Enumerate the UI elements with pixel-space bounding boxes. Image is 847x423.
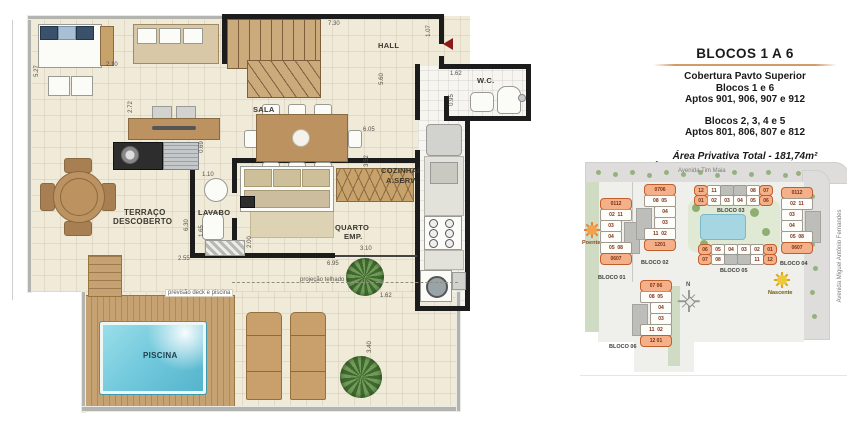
lavabo-sink: [204, 178, 228, 202]
unit-cell: 06: [759, 195, 773, 206]
burner-icon: [429, 239, 438, 248]
plant: [346, 258, 384, 296]
parapet-bottom: [82, 407, 460, 411]
wall-kitchen-left-a: [415, 64, 420, 120]
unit-cell: 03: [720, 195, 734, 206]
pillow: [244, 169, 272, 187]
bloco-01-label: BLOCO 01: [598, 275, 626, 281]
street-label-right: Avenida Miguel Antônio Fernandes: [837, 196, 843, 316]
shower-icon: [518, 94, 526, 102]
bloco-05-label: BLOCO 05: [720, 268, 748, 274]
plant: [340, 356, 382, 398]
property-line: [12, 20, 13, 300]
deck-steps: [88, 255, 122, 297]
burner-icon: [445, 229, 454, 238]
dim-6-05: 6.05: [363, 127, 375, 133]
nightstand: [240, 196, 255, 208]
barbecue-grill: [121, 146, 139, 164]
roof-note: projeção telhado: [300, 277, 344, 283]
info-line-4: Blocos 2, 3, 4 e 5: [645, 116, 845, 128]
building-core-cell: [737, 254, 751, 265]
wall-kitchen-bottom: [415, 306, 470, 311]
wall-wc-top: [439, 64, 531, 69]
info-line-1: Cobertura Pavto Superior: [645, 71, 845, 83]
unit-cell: 04: [733, 195, 747, 206]
dim-1-10: 1.10: [202, 172, 214, 178]
room-label-terraco-2: DESCOBERTO: [113, 217, 172, 226]
info-line-3: Aptos 901, 906, 907 e 912: [645, 94, 845, 106]
bloco-06-label: BLOCO 06: [609, 344, 637, 350]
terrace-chair: [64, 221, 92, 236]
title-rule: [653, 64, 837, 66]
sun-lounger: [290, 312, 326, 400]
room-label-cozinha-2: A.SERV.: [386, 176, 417, 185]
dim-1-07: 1.07: [426, 25, 432, 37]
building-core-cell: [724, 254, 738, 265]
staircase-lower-flight: [247, 60, 321, 98]
ottoman: [71, 76, 93, 96]
dim-5-60: 5.60: [379, 73, 385, 85]
sofa-pillow: [183, 28, 203, 44]
terrace-railing-top: [28, 16, 224, 19]
street-trees-top: [596, 170, 601, 175]
room-label-hall: HALL: [378, 41, 399, 50]
dim-2-72: 2.72: [128, 101, 134, 113]
deck-note: previsão deck e piscina: [165, 289, 233, 297]
dim-0-69: 0.69: [199, 141, 205, 153]
unit-cell: 0607: [781, 242, 813, 254]
dim-3-40: 3.40: [367, 341, 373, 353]
green-strip-left: [585, 182, 599, 332]
pillow: [40, 26, 58, 40]
shaft: [205, 240, 245, 256]
unit-cell: 08: [711, 254, 725, 265]
courtyard-pool: [700, 214, 746, 240]
parapet-left: [82, 292, 85, 412]
window-line: [335, 255, 417, 257]
info-title: BLOCOS 1 A 6: [645, 46, 845, 61]
laundry-tank: [452, 272, 466, 290]
sun-poente-icon: [584, 222, 600, 238]
centerpiece: [292, 129, 310, 147]
wall-wc-bottom: [444, 116, 531, 121]
room-label-quarto-2: EMP.: [344, 232, 363, 241]
tree-icon: [750, 208, 759, 217]
tree-icon: [762, 228, 770, 236]
pillow: [273, 169, 301, 187]
ottoman: [48, 76, 70, 96]
street-label-top: Avenida Tim Maia: [678, 168, 726, 174]
pillow: [58, 26, 76, 40]
wall-wc-right: [526, 64, 531, 121]
bloco-04-label: BLOCO 04: [780, 261, 808, 267]
dim-1-62-wc: 1.62: [450, 71, 462, 77]
dim-1-65: 1.65: [199, 225, 205, 237]
burner-icon: [445, 239, 454, 248]
sofa-pillow: [159, 28, 181, 44]
stove: [424, 216, 462, 250]
wc-toilet: [497, 86, 521, 114]
bloco-06: 07 06 08 05 04 03 11 02 12 01: [640, 280, 672, 346]
entry-arrow-icon: [443, 38, 453, 50]
dim-2-00: 2.00: [247, 236, 253, 248]
dim-2-10: 2.10: [106, 62, 118, 68]
wall-lavabo-divider-a: [232, 163, 237, 193]
burner-icon: [445, 219, 454, 228]
blanket: [244, 190, 330, 208]
sun-poente-label: Poente: [582, 240, 600, 246]
service-counter: [424, 250, 464, 270]
sun-nascente-label: Nascente: [768, 290, 792, 296]
pillow: [302, 169, 330, 187]
info-line-5: Aptos 801, 806, 807 e 812: [645, 127, 845, 139]
unit-cell: 07: [698, 254, 712, 265]
roof-projection-line: [232, 282, 458, 283]
sofa-pillow: [137, 28, 157, 44]
bed-bench: [100, 26, 114, 66]
dim-6-30: 6.30: [184, 219, 190, 231]
dim-5-27: 5.27: [34, 65, 40, 77]
unit-cell: 12: [763, 254, 777, 265]
fridge: [426, 124, 462, 156]
dim-3-52: 3.52: [364, 155, 370, 167]
unit-cell: 0607: [600, 253, 632, 265]
burner-icon: [429, 229, 438, 238]
dim-3-10: 3.10: [360, 246, 372, 252]
unit-cell: 11: [750, 254, 764, 265]
compass-icon: [678, 290, 700, 312]
site-plan: Avenida Tim Maia Avenida Miguel Antônio …: [580, 158, 847, 380]
dim-0-95: 0.95: [449, 94, 455, 106]
washer-door: [426, 276, 448, 298]
room-label-quarto-1: QUARTO: [335, 223, 369, 232]
room-label-wc: W.C.: [477, 76, 494, 85]
room-label-terraco-1: TERRAÇO: [124, 208, 166, 217]
burner-icon: [429, 219, 438, 228]
room-label-lavabo: LAVABO: [198, 208, 230, 217]
bloco-03-label: BLOCO 03: [717, 208, 745, 214]
bloco-03: 12 11 08 07 01 02 03 04 05 06: [694, 185, 772, 206]
dim-2-55: 2.55: [178, 256, 190, 262]
unit-cell: 12 01: [640, 335, 672, 347]
pillow: [76, 26, 94, 40]
dim-6-95: 6.95: [327, 261, 339, 267]
bloco-02-label: BLOCO 02: [641, 260, 669, 266]
wall-mid-left: [190, 158, 195, 258]
terrace-railing-left: [28, 16, 31, 292]
bloco-01: 0112 02 11 03 04 05 08 0607: [600, 198, 632, 264]
service-shutter: [163, 142, 199, 170]
floor-plan: HALL SALA W.C. COZINHA/ A.SERV. LAVABO Q…: [0, 0, 560, 423]
sun-lounger: [246, 312, 282, 400]
sun-nascente-icon: [774, 272, 790, 288]
unit-cell: 1201: [644, 239, 676, 251]
tv: [152, 126, 196, 130]
dim-7-30: 7.30: [328, 21, 340, 27]
unit-cell: 05: [746, 195, 760, 206]
table-inner-ring: [60, 178, 98, 216]
bloco-04: 0112 02 11 03 04 05 08 0607: [781, 187, 813, 253]
info-panel: BLOCOS 1 A 6 Cobertura Pavto Superior Bl…: [645, 46, 845, 174]
room-label-cozinha-1: COZINHA/: [381, 166, 420, 175]
info-line-2: Blocos 1 e 6: [645, 83, 845, 95]
wc-sink: [470, 92, 494, 112]
room-label-piscina: PISCINA: [143, 351, 178, 360]
unit-cell: 01: [694, 195, 708, 206]
dim-1-62-deck: 1.62: [380, 293, 392, 299]
kitchen-sink: [430, 162, 458, 184]
plan-sheet: HALL SALA W.C. COZINHA/ A.SERV. LAVABO Q…: [0, 0, 847, 423]
bloco-02: 0706 08 05 04 03 11 02 1201: [644, 184, 676, 250]
dining-chair: [348, 130, 362, 148]
room-label-sala: SALA: [253, 105, 275, 114]
compass-n-label: N: [686, 282, 690, 288]
map-edge-line: [580, 375, 847, 376]
unit-cell: 02: [707, 195, 721, 206]
bloco-05: 06 05 04 03 02 01 07 08 11 12: [698, 244, 776, 265]
